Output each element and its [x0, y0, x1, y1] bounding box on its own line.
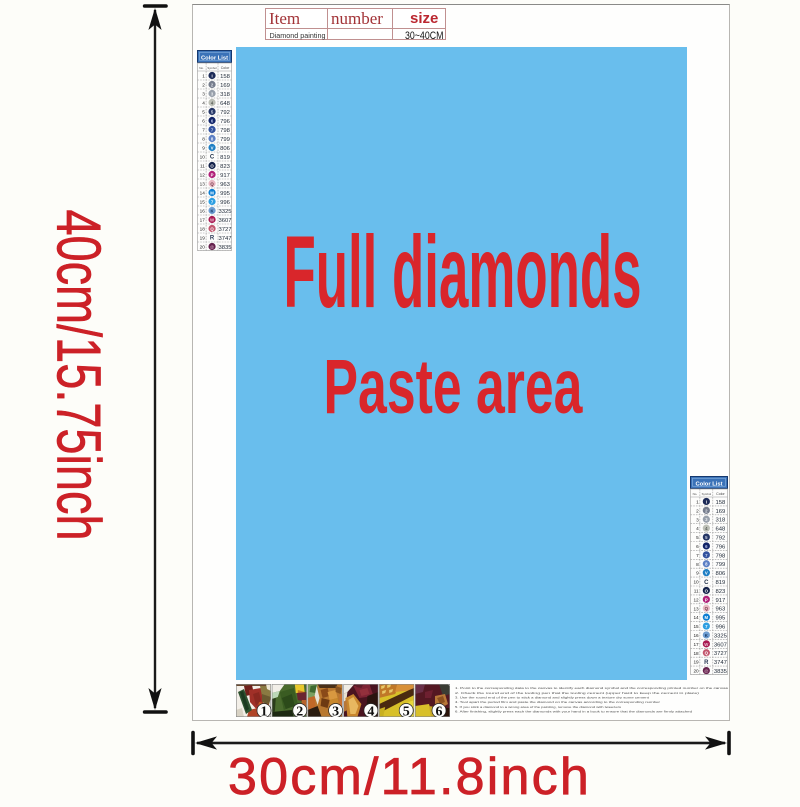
svg-text:799: 799: [715, 562, 725, 568]
svg-text:5: 5: [403, 704, 410, 717]
svg-text:996: 996: [715, 624, 726, 630]
svg-text:169: 169: [715, 509, 725, 515]
svg-text:6: 6: [696, 544, 699, 549]
svg-text:P: P: [211, 172, 214, 177]
svg-text:15: 15: [693, 624, 699, 629]
svg-text:158: 158: [715, 500, 726, 506]
svg-text:169: 169: [220, 83, 230, 89]
svg-text:5. If you stick a diamond: 5. If you stick a diamond to a wrong are…: [455, 705, 622, 709]
svg-text:648: 648: [220, 101, 231, 107]
svg-text:792: 792: [220, 110, 230, 116]
svg-text:3607: 3607: [218, 218, 231, 224]
svg-text:819: 819: [220, 155, 230, 161]
svg-text:M: M: [210, 190, 214, 195]
svg-text:V: V: [705, 571, 708, 576]
svg-text:5: 5: [202, 110, 205, 115]
svg-text:648: 648: [715, 527, 726, 533]
svg-text:20: 20: [200, 245, 206, 250]
svg-text:3835: 3835: [714, 669, 728, 675]
svg-text:318: 318: [220, 92, 231, 98]
svg-text:17: 17: [693, 642, 699, 647]
svg-text:799: 799: [220, 137, 230, 143]
svg-text:796: 796: [715, 544, 726, 550]
svg-text:3747: 3747: [714, 660, 727, 666]
svg-text:798: 798: [715, 553, 726, 559]
svg-text:4: 4: [367, 704, 374, 717]
svg-text:6: 6: [436, 704, 443, 717]
svg-text:3: 3: [202, 92, 205, 97]
svg-text:13: 13: [200, 182, 206, 187]
svg-text:R: R: [704, 660, 709, 666]
svg-text:1: 1: [261, 704, 268, 717]
svg-text:1: 1: [696, 499, 699, 504]
svg-text:R: R: [210, 236, 215, 242]
svg-text:13: 13: [693, 606, 699, 611]
svg-text:18: 18: [693, 651, 699, 656]
svg-text:Color: Color: [716, 492, 725, 496]
svg-text:796: 796: [220, 119, 231, 125]
svg-text:1. Point to the correspond: 1. Point to the corresponding data to th…: [455, 686, 729, 690]
svg-text:Color List: Color List: [695, 482, 722, 488]
svg-text:16: 16: [200, 209, 206, 214]
svg-text:2: 2: [696, 508, 699, 513]
svg-text:6: 6: [202, 119, 205, 124]
svg-text:3607: 3607: [714, 642, 727, 648]
svg-text:M: M: [705, 615, 709, 620]
svg-text:No.: No.: [693, 492, 698, 496]
svg-text:3727: 3727: [714, 651, 727, 657]
svg-text:Color List: Color List: [201, 56, 228, 62]
svg-text:823: 823: [715, 589, 726, 595]
svg-text:3. Use the round end of: 3. Use the round end of the pen to stick…: [455, 696, 649, 700]
svg-text:@: @: [210, 244, 214, 249]
svg-text:12: 12: [693, 597, 699, 602]
svg-text:3325: 3325: [218, 209, 232, 215]
svg-text:I: I: [211, 73, 212, 78]
svg-text:No.: No.: [199, 66, 204, 70]
svg-text:318: 318: [715, 518, 726, 524]
svg-text:18: 18: [200, 227, 206, 232]
svg-text:995: 995: [220, 191, 231, 197]
svg-text:1: 1: [202, 74, 205, 79]
svg-text:819: 819: [715, 580, 725, 586]
svg-text:3727: 3727: [218, 227, 231, 233]
svg-text:3835: 3835: [218, 245, 232, 251]
svg-text:806: 806: [715, 571, 726, 577]
svg-text:20: 20: [693, 669, 699, 674]
svg-text:3747: 3747: [218, 236, 231, 242]
svg-text:16: 16: [693, 633, 699, 638]
svg-text:10: 10: [200, 155, 206, 160]
svg-text:9: 9: [202, 146, 205, 151]
svg-text:19: 19: [693, 660, 699, 665]
svg-text:17: 17: [200, 218, 206, 223]
svg-text:2. Check the round end of: 2. Check the round end of the tooling pe…: [455, 691, 699, 695]
svg-text:995: 995: [715, 616, 726, 622]
svg-text:7: 7: [202, 128, 205, 133]
svg-text:917: 917: [220, 173, 230, 179]
svg-text:2: 2: [296, 704, 303, 717]
svg-text:C: C: [210, 155, 215, 161]
svg-text:917: 917: [715, 598, 725, 604]
svg-text:3: 3: [696, 517, 699, 522]
svg-text:5: 5: [696, 535, 699, 540]
svg-text:11: 11: [200, 164, 205, 169]
svg-text:14: 14: [693, 615, 699, 620]
svg-text:7: 7: [696, 553, 699, 558]
svg-text:C: C: [704, 580, 709, 586]
svg-text:19: 19: [200, 236, 206, 241]
svg-text:4: 4: [202, 101, 205, 106]
svg-text:V: V: [211, 145, 214, 150]
svg-text:Symbol: Symbol: [207, 66, 217, 70]
svg-text:996: 996: [220, 200, 231, 206]
svg-text:14: 14: [200, 191, 206, 196]
svg-text:963: 963: [715, 607, 726, 613]
svg-text:806: 806: [220, 146, 231, 152]
svg-text:8: 8: [696, 562, 699, 567]
svg-text:798: 798: [220, 128, 231, 134]
svg-text:Color: Color: [221, 66, 230, 70]
svg-text:963: 963: [220, 182, 231, 188]
svg-text:8: 8: [202, 137, 205, 142]
svg-text:15: 15: [200, 200, 206, 205]
svg-text:3325: 3325: [714, 633, 728, 639]
svg-text:@: @: [704, 668, 708, 673]
svg-text:2: 2: [202, 83, 205, 88]
svg-text:4. Tool apart the period: 4. Tool apart the period film and paste …: [455, 700, 660, 704]
svg-text:158: 158: [220, 74, 231, 80]
svg-text:P: P: [705, 597, 708, 602]
svg-text:3: 3: [332, 704, 339, 717]
svg-text:792: 792: [715, 535, 725, 541]
svg-text:4: 4: [696, 526, 699, 531]
svg-text:Symbol: Symbol: [702, 492, 712, 496]
svg-text:10: 10: [693, 580, 699, 585]
svg-text:12: 12: [200, 173, 206, 178]
svg-text:6. After finishing, slightl: 6. After finishing, slightly press each …: [455, 709, 693, 713]
svg-text:823: 823: [220, 164, 231, 170]
svg-text:I: I: [706, 499, 707, 504]
svg-text:11: 11: [694, 588, 699, 593]
svg-text:9: 9: [696, 571, 699, 576]
